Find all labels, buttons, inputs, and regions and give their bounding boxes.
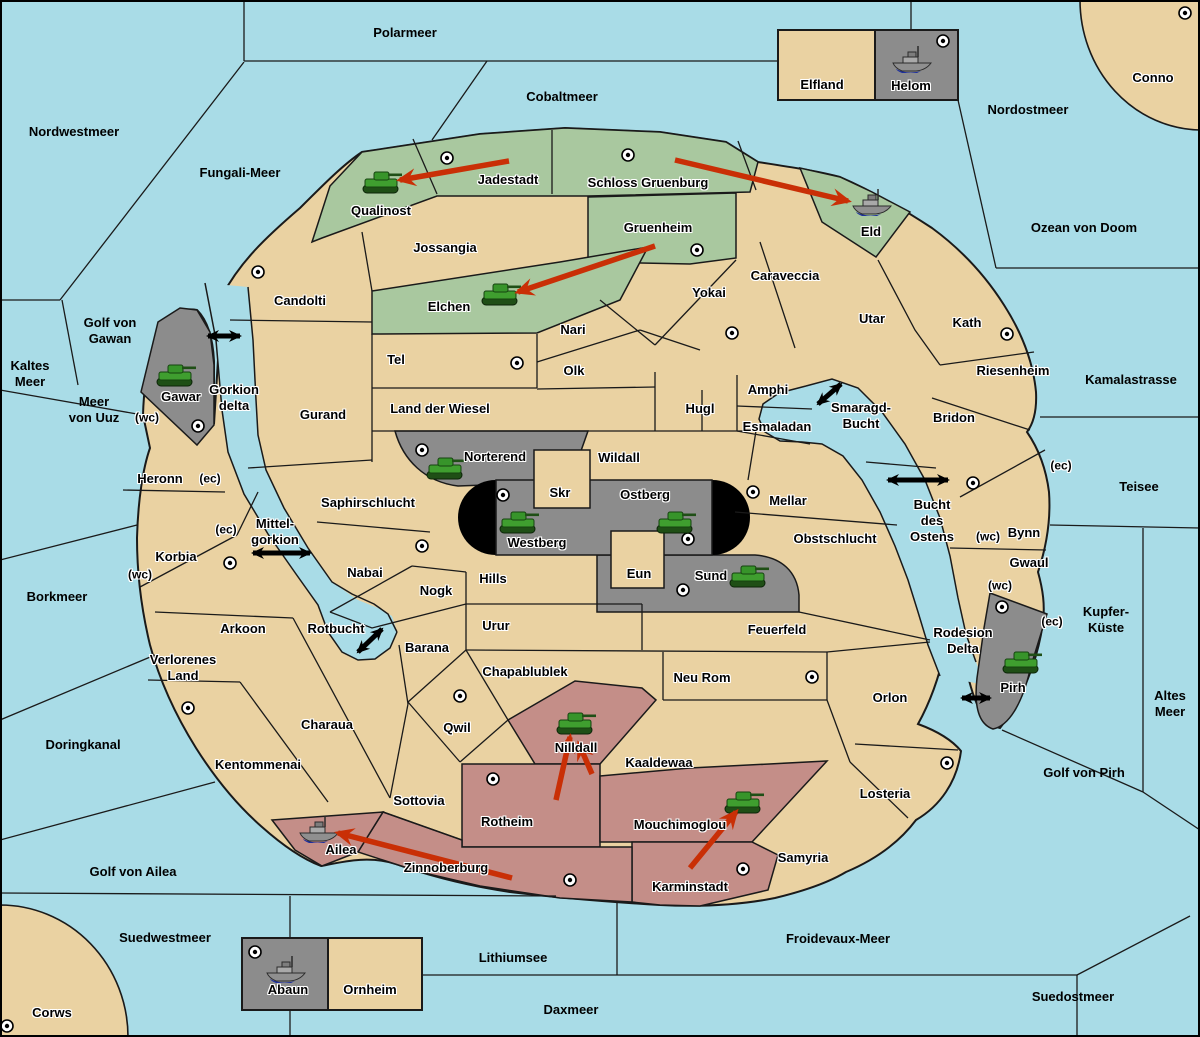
- supply-center-icon: [224, 557, 236, 569]
- supply-center-icon: [564, 874, 576, 886]
- supply-center-icon: [182, 702, 194, 714]
- supply-center-icon: [487, 773, 499, 785]
- supply-center-icon: [937, 35, 949, 47]
- supply-center-icon: [747, 486, 759, 498]
- supply-center-icon: [806, 671, 818, 683]
- supply-center-icon: [1, 1020, 13, 1032]
- supply-center-icon: [441, 152, 453, 164]
- supply-center-icon: [941, 757, 953, 769]
- supply-center-icon: [682, 533, 694, 545]
- game-map: PolarmeerCobaltmeerNordwestmeerFungali-M…: [0, 0, 1200, 1037]
- supply-center-icon: [677, 584, 689, 596]
- supply-center-icon: [249, 946, 261, 958]
- region-elfland: [778, 30, 875, 100]
- supply-center-icon: [416, 540, 428, 552]
- supply-center-icon: [497, 489, 509, 501]
- map-canvas: [0, 0, 1200, 1037]
- region-eun: [611, 531, 664, 588]
- supply-center-icon: [726, 327, 738, 339]
- supply-center-icon: [511, 357, 523, 369]
- supply-center-icon: [454, 690, 466, 702]
- supply-center-icon: [996, 601, 1008, 613]
- region-ornheim: [328, 938, 422, 1010]
- supply-center-icon: [967, 477, 979, 489]
- supply-center-icon: [622, 149, 634, 161]
- supply-center-icon: [737, 863, 749, 875]
- supply-center-icon: [1001, 328, 1013, 340]
- supply-center-icon: [691, 244, 703, 256]
- region-skr: [534, 450, 590, 508]
- supply-center-icon: [252, 266, 264, 278]
- supply-center-icon: [192, 420, 204, 432]
- supply-center-icon: [1179, 7, 1191, 19]
- supply-center-icon: [416, 444, 428, 456]
